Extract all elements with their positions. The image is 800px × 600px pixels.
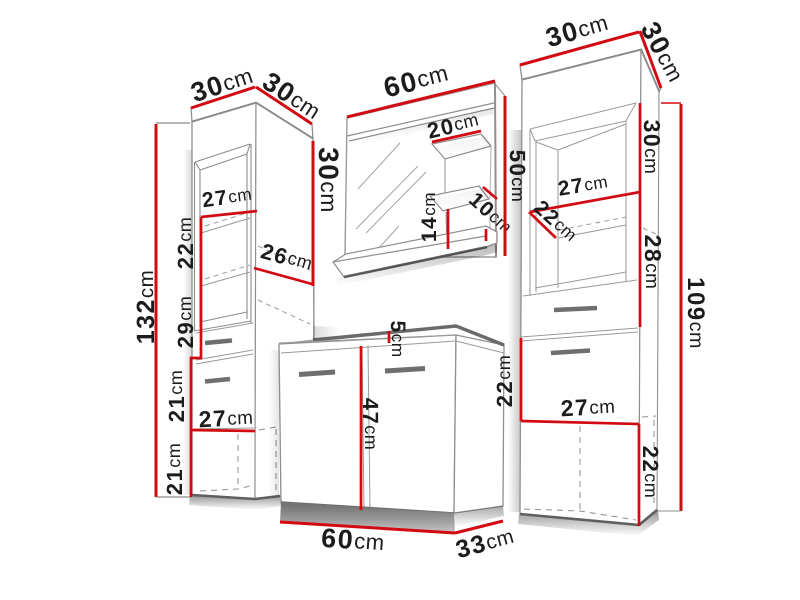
svg-text:28cm: 28cm — [640, 235, 666, 290]
svg-text:5cm: 5cm — [387, 320, 410, 357]
svg-text:22cm: 22cm — [173, 217, 198, 270]
svg-text:14cm: 14cm — [418, 192, 441, 242]
svg-text:21cm: 21cm — [164, 370, 189, 423]
svg-text:30cm: 30cm — [314, 147, 345, 213]
svg-text:132cm: 132cm — [132, 270, 160, 345]
svg-text:21cm: 21cm — [162, 443, 187, 496]
svg-text:22cm: 22cm — [492, 355, 517, 408]
svg-text:47cm: 47cm — [359, 398, 384, 451]
svg-text:29cm: 29cm — [173, 296, 198, 349]
svg-text:22cm: 22cm — [639, 446, 664, 499]
svg-text:30cm: 30cm — [639, 120, 665, 175]
svg-text:50cm: 50cm — [506, 150, 531, 203]
svg-text:109cm: 109cm — [683, 277, 710, 349]
